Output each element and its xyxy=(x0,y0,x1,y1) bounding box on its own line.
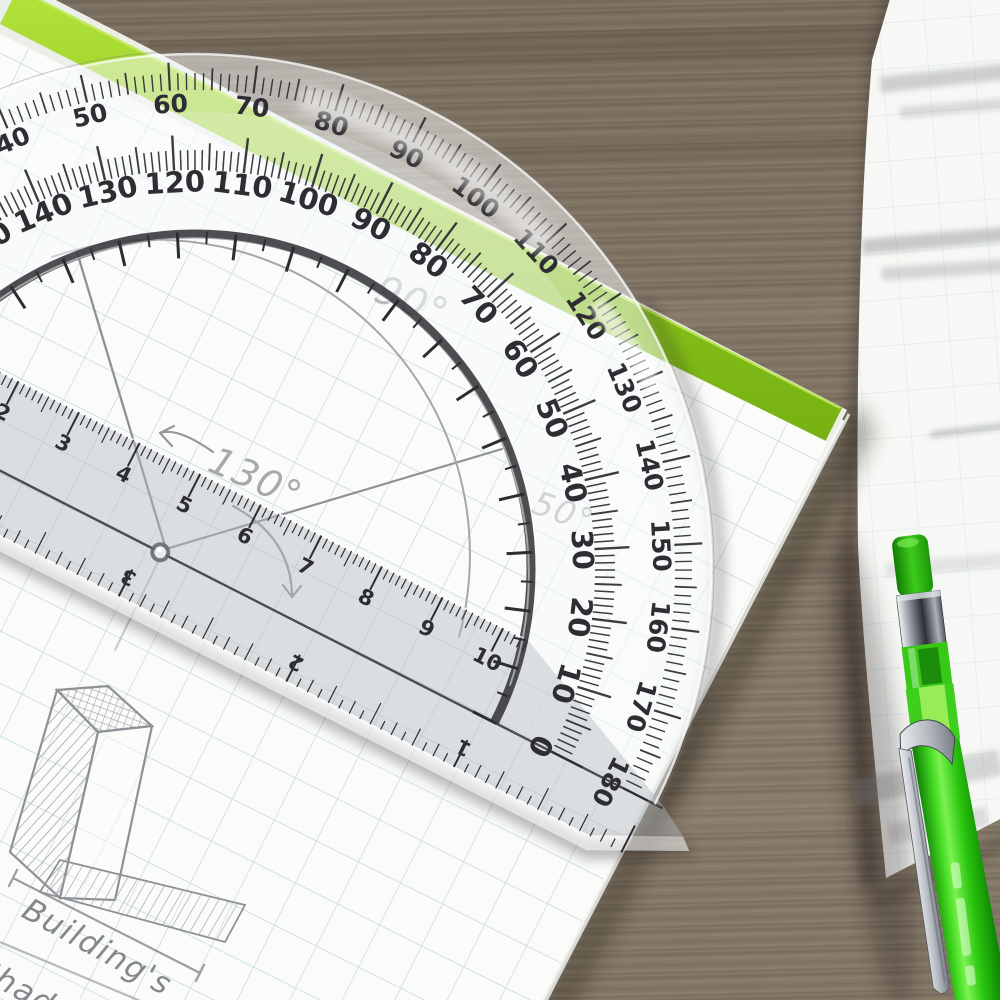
degree-label: 60 xyxy=(152,89,188,120)
photo-scene: Building's Shadow? 90° 130° 50° 01020304… xyxy=(0,0,1000,1000)
degree-label: 20 xyxy=(561,595,600,639)
scene-svg: Building's Shadow? 90° 130° 50° 01020304… xyxy=(0,0,1000,1000)
degree-label: 70 xyxy=(233,90,271,123)
degree-label: 30 xyxy=(564,529,600,571)
degree-label: 150 xyxy=(645,519,677,573)
degree-label: 120 xyxy=(144,164,206,201)
